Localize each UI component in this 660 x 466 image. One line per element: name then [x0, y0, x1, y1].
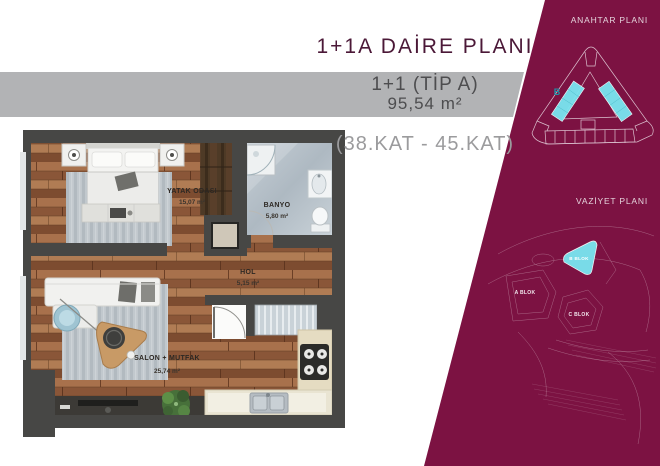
- site-label-a-blok: A BLOK: [515, 290, 536, 296]
- room-area-bathroom: 5,80 m²: [266, 213, 289, 220]
- bed-bench: [82, 204, 160, 222]
- key-plan-diagram: B: [525, 38, 660, 153]
- window-left-bottom: [20, 276, 26, 360]
- kitchen-sink: [250, 393, 288, 413]
- bed: [86, 143, 160, 204]
- window-left-top: [20, 152, 26, 230]
- nightstand-right: [160, 144, 184, 166]
- room-area-bedroom: 15,07 m²: [179, 199, 206, 206]
- b-block-highlight: B BLOK: [564, 241, 598, 275]
- plant: [162, 390, 190, 418]
- round-side-table: [54, 305, 80, 331]
- room-label-hall: HOL: [240, 269, 256, 276]
- shaft: [204, 215, 247, 256]
- highlighted-wings: B: [551, 81, 632, 122]
- room-label-bedroom: YATAK ODASI: [167, 188, 217, 195]
- nightstand-left: [62, 144, 86, 166]
- site-plan-diagram: B BLOK A BLOK C BLOK: [488, 212, 658, 462]
- wing-letter-b: B: [554, 87, 561, 97]
- site-plan-title: VAZİYET PLANI: [576, 196, 648, 206]
- key-plan-title: ANAHTAR PLANI: [571, 15, 648, 25]
- apartment-floor-plan: YATAK ODASI 15,07 m² BANYO 5,80 m² HOL 5…: [18, 126, 350, 438]
- site-label-c-blok: C BLOK: [569, 312, 590, 318]
- site-label-b-blok: B BLOK: [569, 256, 589, 261]
- room-label-bathroom: BANYO: [264, 202, 291, 209]
- stove: [300, 344, 329, 380]
- bathroom-vanity: [308, 170, 332, 198]
- room-label-living-kitchen: SALON + MUTFAK: [134, 355, 200, 362]
- tv: [78, 400, 138, 406]
- room-area-living-kitchen: 25,74 m²: [154, 368, 181, 375]
- room-area-hall: 5,15 m²: [237, 280, 260, 287]
